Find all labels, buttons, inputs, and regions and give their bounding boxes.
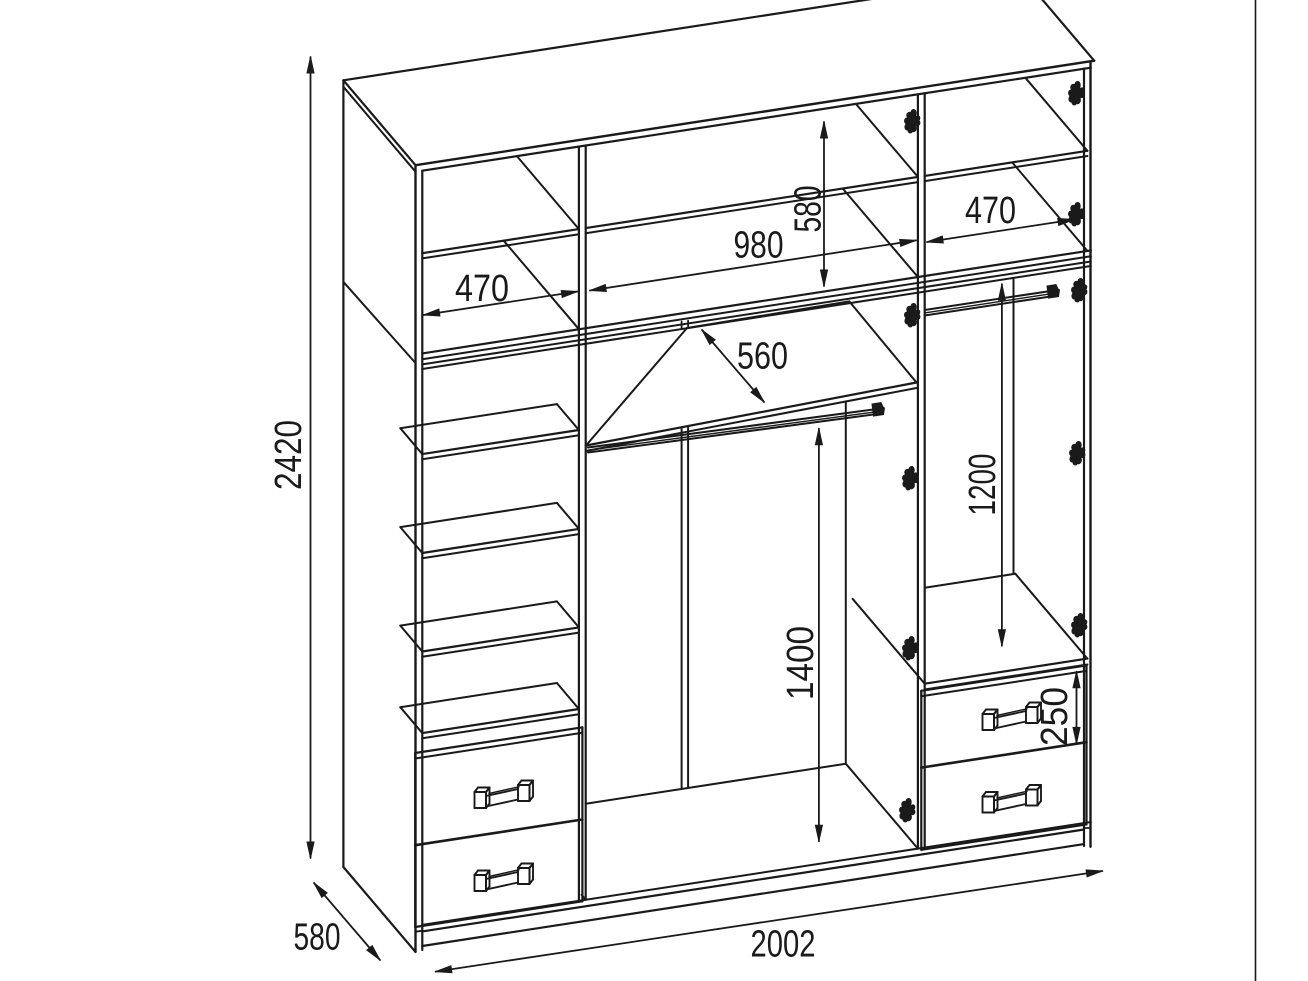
svg-text:2420: 2420 <box>268 420 310 490</box>
svg-text:580: 580 <box>294 917 341 959</box>
svg-text:980: 980 <box>734 225 784 267</box>
svg-text:250: 250 <box>1034 687 1076 746</box>
svg-text:580: 580 <box>788 186 830 233</box>
svg-text:470: 470 <box>965 190 1016 232</box>
svg-text:470: 470 <box>455 268 509 310</box>
svg-text:1400: 1400 <box>780 626 822 700</box>
svg-text:1200: 1200 <box>962 454 1004 516</box>
svg-text:560: 560 <box>737 336 788 378</box>
svg-text:2002: 2002 <box>751 924 816 966</box>
